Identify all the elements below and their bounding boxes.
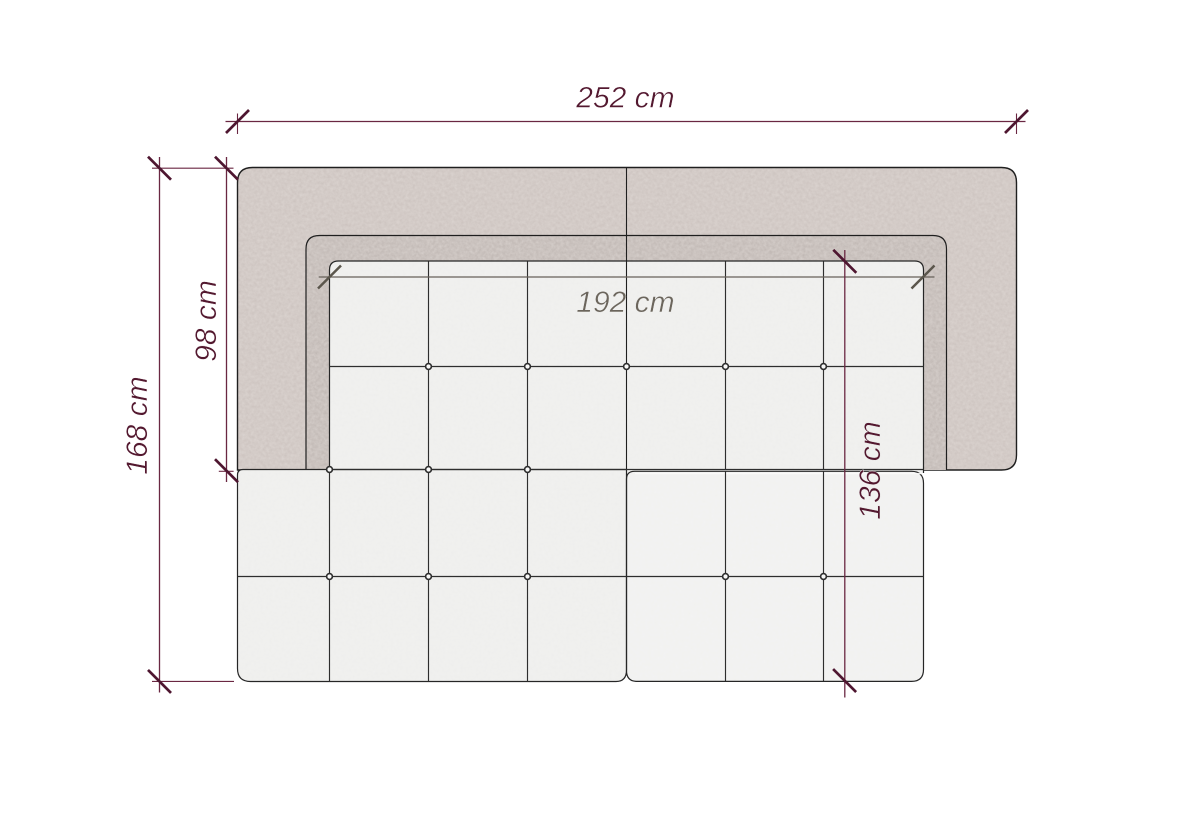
svg-text:168 cm: 168 cm (121, 376, 154, 474)
svg-text:98 cm: 98 cm (190, 280, 223, 362)
svg-text:136 cm: 136 cm (854, 421, 887, 519)
svg-text:252 cm: 252 cm (575, 82, 674, 115)
svg-text:192 cm: 192 cm (576, 286, 674, 319)
